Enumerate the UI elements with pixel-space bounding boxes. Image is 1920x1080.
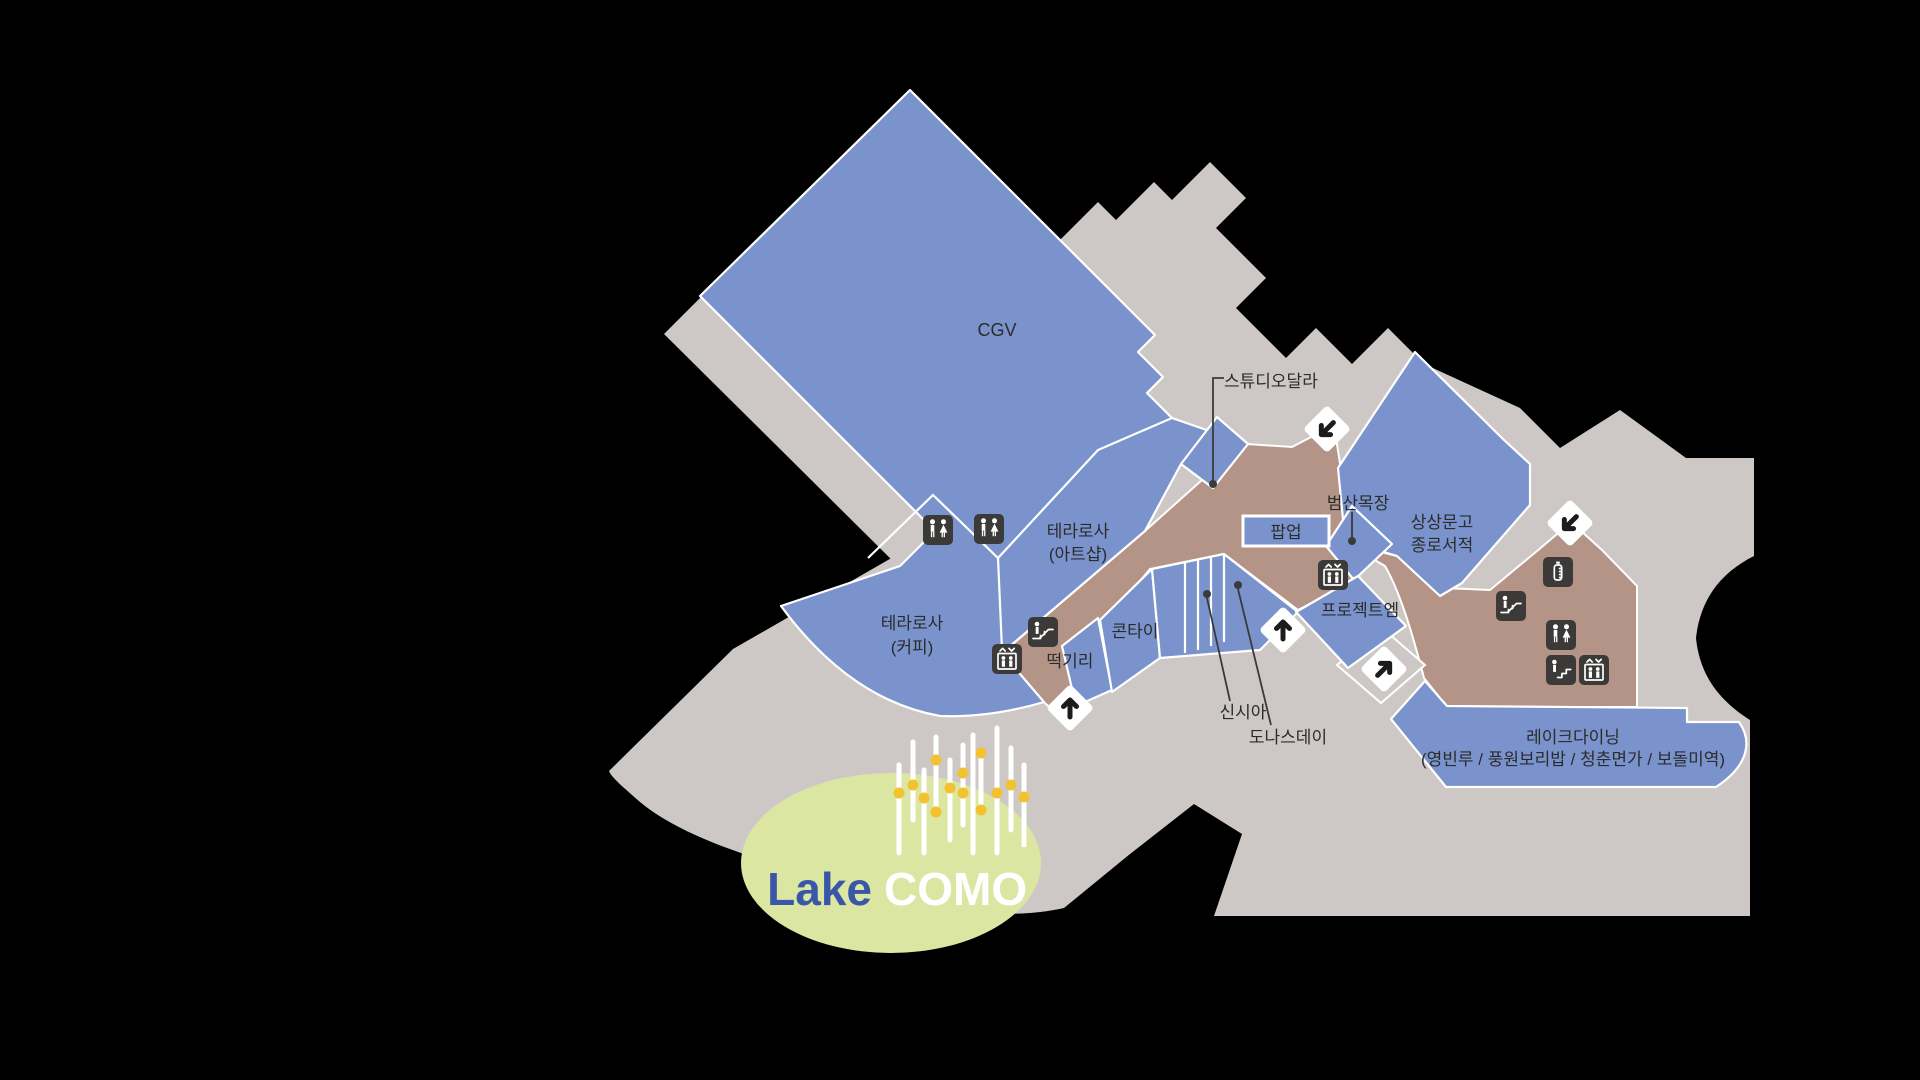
logo-text-lake: Lake: [767, 863, 872, 915]
terarosa-artshop-label-1: 테라로사: [1047, 522, 1110, 541]
terarosa-artshop-label-2: (아트샵): [1049, 545, 1107, 564]
sangsang-label-2: 종로서적: [1411, 536, 1474, 555]
tteokgiri-label: 떡기리: [1047, 652, 1094, 671]
donasday-label: 도나스데이: [1249, 728, 1327, 747]
popup-label: 팝업: [1270, 523, 1301, 542]
cgv-label: CGV: [977, 320, 1016, 340]
stairs-icon: [1546, 655, 1576, 685]
sangsang-label-1: 상상문고: [1411, 513, 1474, 532]
logo-text-como: COMO: [884, 863, 1027, 915]
sinsia-label: 신시아: [1220, 703, 1267, 722]
elevator-icon: [1579, 655, 1609, 685]
popup-store[interactable]: 팝업: [1243, 516, 1329, 546]
restroom-icon: [923, 515, 953, 545]
beomsan-label: 범산목장: [1327, 494, 1390, 513]
terarosa-coffee-label-1: 테라로사: [881, 614, 944, 633]
restroom-icon: [1546, 620, 1576, 650]
elevator-icon: [1318, 560, 1348, 590]
nursing-room-icon: [1543, 557, 1573, 587]
kontai-label: 콘타이: [1112, 622, 1159, 641]
escalator-icon: [1028, 617, 1058, 647]
lakedining-label-2: (영빈루 / 풍원보리밥 / 청춘면가 / 보돌미역): [1421, 750, 1725, 769]
terarosa-coffee-label-2: (커피): [891, 638, 934, 657]
restroom-icon: [974, 514, 1004, 544]
escalator-icon: [1496, 591, 1526, 621]
projectm-label: 프로젝트엠: [1321, 601, 1399, 620]
mall-floor-map: 팝업 CGV 스튜디오달라 테라로사 (아트샵) 테라로사 (커피) 콘타이 떡…: [0, 0, 1920, 1080]
lakedining-label-1: 레이크다이닝: [1526, 728, 1620, 747]
studio-dala-label: 스튜디오달라: [1224, 372, 1318, 391]
elevator-icon: [992, 644, 1022, 674]
